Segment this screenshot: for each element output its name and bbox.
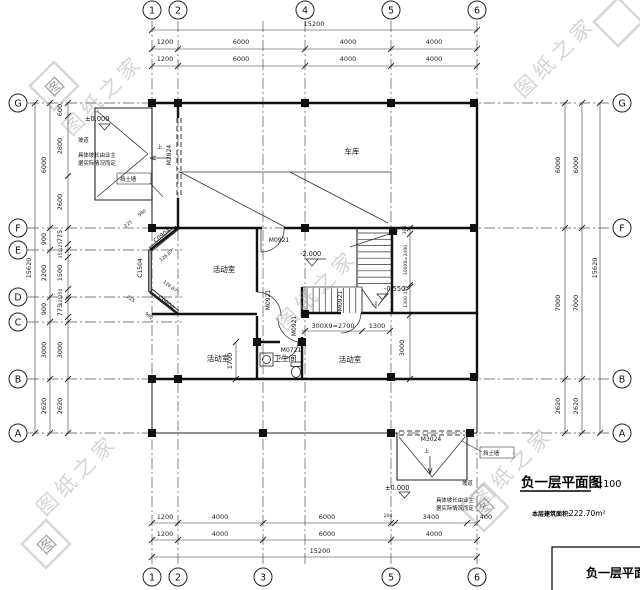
dim: 6000	[233, 55, 250, 63]
note-line2: 据实际情况而定	[78, 159, 116, 167]
top-dimensions: 15200 1200 6000 4000 4000 1200 6000 4000…	[157, 20, 443, 63]
dim: 3400	[423, 513, 440, 521]
dim: 125	[58, 242, 64, 251]
tag-m0921: M0921	[337, 291, 344, 312]
note-up: 上	[424, 447, 430, 455]
column	[301, 224, 309, 232]
column	[148, 375, 156, 383]
dim: 6000	[572, 157, 580, 174]
dim-left-total: 15620	[25, 258, 33, 279]
dim-bay-angle: 126.87°	[162, 279, 180, 295]
dim: 2600	[56, 194, 64, 211]
axis-right-F: F	[619, 224, 624, 235]
axis-bottom-2: 2	[175, 573, 181, 584]
floor-plan-drawing: 图纸之家 图纸之家 图纸之家 图纸之家 图纸之家 图 图 图 1 2 4 5 6…	[0, 0, 640, 590]
axis-left-C: C	[15, 318, 22, 329]
dim: 1300	[369, 322, 386, 330]
axis-top-2: 2	[175, 6, 181, 17]
dim-bay-angle: 126.87°	[158, 247, 176, 263]
dim: 3000	[398, 340, 406, 357]
column	[466, 429, 474, 437]
dim: 1200	[157, 38, 174, 46]
dim: 6000	[233, 38, 250, 46]
note-retaining: 挡土墙	[120, 175, 137, 183]
column	[387, 373, 395, 381]
axis-right-A: A	[619, 429, 626, 440]
dim: 1200	[157, 530, 174, 538]
dim: 200	[384, 513, 393, 519]
svg-text:图: 图	[34, 532, 60, 558]
column	[174, 99, 182, 107]
tag-c1504: C1504	[137, 258, 144, 278]
walls	[150, 103, 477, 379]
dim: 775	[56, 230, 64, 242]
note-line2: 据实际情况而定	[436, 504, 474, 512]
column	[298, 338, 306, 346]
dim: 2620	[572, 398, 580, 415]
dim: 1200	[157, 55, 174, 63]
area-value: 222.70m²	[569, 509, 606, 518]
dim: 7000	[572, 295, 580, 312]
dim: 400	[480, 513, 492, 521]
column	[148, 99, 156, 107]
dim: 3000	[56, 342, 64, 359]
dim-right-total: 15620	[591, 258, 599, 279]
column	[259, 429, 267, 437]
left-dimensions: 15620 6000 900 2200 900 3000 2620 600 28…	[25, 104, 64, 414]
dim: 2800	[56, 138, 64, 155]
room-bath: 卫生间	[274, 353, 297, 363]
tag-m0921: M0921	[269, 237, 290, 244]
column	[389, 227, 397, 235]
note-up: 上	[157, 143, 163, 151]
dim: 3000	[40, 342, 48, 359]
column	[148, 429, 156, 437]
toilet	[292, 367, 301, 378]
level-zero: ±0.000	[85, 115, 109, 123]
dim: 775	[56, 304, 64, 316]
tag-m0921: M0921	[291, 316, 298, 337]
dim: 2620	[40, 398, 48, 415]
room-garage: 车库	[345, 146, 360, 156]
axis-top-4: 4	[302, 6, 308, 17]
sink	[260, 353, 273, 366]
axis-bottom-6: 6	[474, 573, 480, 584]
note-retaining: 挡土墙	[483, 449, 500, 457]
dim: 1500	[56, 265, 64, 282]
room-activity: 活动室	[213, 264, 236, 274]
dim: 980	[137, 208, 148, 218]
dim: 6000	[554, 157, 562, 174]
dim: 2620	[554, 398, 562, 415]
dim: 4000	[426, 38, 443, 46]
axis-left-G: G	[14, 99, 21, 110]
plan-scale: 1:100	[594, 479, 621, 490]
column	[253, 338, 261, 346]
note-ramp: 坡道	[462, 479, 473, 487]
dim: 2200	[40, 265, 48, 282]
axis-left-A: A	[15, 429, 22, 440]
dim: 7000	[554, 295, 562, 312]
dim: 225	[125, 294, 136, 304]
column	[470, 373, 478, 381]
axis-left-B: B	[15, 375, 22, 386]
axis-top-1: 1	[149, 6, 155, 17]
note-line1: 具体坡长由业主	[78, 151, 116, 159]
note-line1: 具体坡长由业主	[436, 496, 474, 504]
dim: 6000	[319, 513, 336, 521]
level-neg2: -2.000	[300, 250, 321, 258]
axis-bottom-5: 5	[388, 573, 394, 584]
dim: 4000	[212, 530, 229, 538]
axis-top-5: 5	[388, 6, 394, 17]
dim: 4000	[212, 513, 229, 521]
watermark-text: 图纸之家	[32, 430, 123, 521]
right-dimensions: 6000 7000 2620 6000 7000 2620 15620	[554, 157, 599, 415]
leader-lines	[117, 173, 514, 458]
room-activity: 活动室	[207, 353, 230, 363]
dim: 600	[56, 104, 64, 116]
level-marks: ±0.000 -2.000 -0.550 ±0.000	[85, 115, 409, 492]
dim: 4000	[426, 55, 443, 63]
dim: 350	[58, 250, 64, 259]
dim: 6000	[319, 530, 336, 538]
axis-top-6: 6	[474, 6, 480, 17]
watermark-text: 图纸之家	[510, 12, 601, 103]
column	[148, 224, 156, 232]
dim-stair-rise: 300X8=2400	[403, 245, 409, 275]
column	[301, 99, 309, 107]
tag-m0921: M0921	[265, 290, 272, 311]
title-block-text: 负一层平面图	[586, 565, 640, 580]
dim-top-total: 15200	[304, 20, 325, 28]
dim: 350	[58, 289, 64, 298]
plan-title: 负一层平面图	[521, 474, 602, 491]
watermark-text: 图纸之家	[58, 50, 149, 141]
bottom-dimensions: 1200 4000 6000 200 3400 400 1200 4000 60…	[157, 513, 492, 555]
dim: 900	[40, 233, 48, 245]
dim: 1200	[157, 513, 174, 521]
dim: 1300	[403, 296, 409, 308]
tag-m3024: M3024	[421, 436, 442, 443]
floor-plan-sheet: 图纸之家 图纸之家 图纸之家 图纸之家 图纸之家 图 图 图 1 2 4 5 6…	[0, 0, 640, 590]
columns	[148, 99, 478, 437]
tag-m2824: M2824	[166, 145, 173, 166]
axis-right-G: G	[618, 99, 625, 110]
dim: 980	[143, 311, 154, 321]
drawing-title: 负一层平面图 1:100 本层建筑面积: 222.70m² 负一层平面图	[521, 474, 640, 580]
note-ramp: 坡道	[78, 136, 89, 144]
column	[470, 224, 478, 232]
dim: 900	[40, 303, 48, 315]
column	[387, 99, 395, 107]
axis-left-F: F	[15, 224, 20, 235]
column	[301, 310, 309, 318]
opening-tags: M2824 M0921 M0921 M0921 M0921 M0721 M302…	[137, 145, 441, 443]
axis-left-E: E	[15, 246, 21, 257]
dim-bottom-total: 15200	[310, 547, 331, 555]
axis-bottom-1: 1	[149, 573, 155, 584]
svg-text:图: 图	[42, 74, 68, 100]
room-activity: 活动室	[339, 354, 362, 364]
dim: 2620	[56, 398, 64, 415]
tag-m0721: M0721	[281, 347, 302, 354]
area-label: 本层建筑面积:	[532, 510, 570, 518]
level-neg055: -0.550	[384, 285, 405, 293]
axis-bottom-3: 3	[260, 573, 266, 584]
level-zero: ±0.000	[385, 484, 409, 492]
column	[174, 375, 182, 383]
dim-stair-run: 300X9=2700	[312, 322, 355, 330]
dim: 6000	[40, 157, 48, 174]
dim: 4000	[426, 530, 443, 538]
dim: 4000	[340, 38, 357, 46]
column	[387, 429, 395, 437]
axis-left-D: D	[14, 293, 21, 304]
dim: 300	[402, 226, 408, 235]
axis-right-B: B	[619, 375, 626, 386]
dim: 4000	[340, 55, 357, 63]
column	[470, 99, 478, 107]
level-flags	[99, 124, 410, 498]
